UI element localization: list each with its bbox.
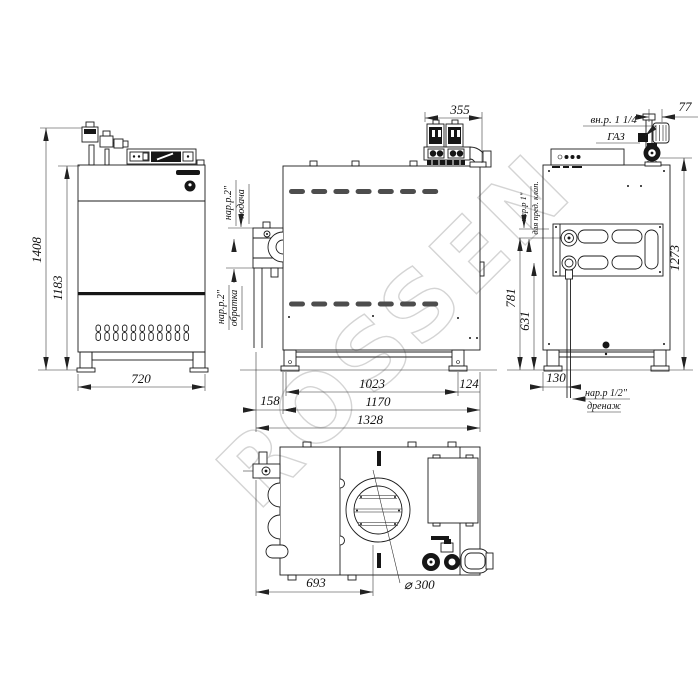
dim-front-total-height: 1408 [29,237,44,264]
dim-side-flange-offset: 158 [260,393,280,408]
technical-drawing-page: ROSSEN 1408 1183 [0,0,700,700]
front-legs [77,352,208,372]
dim-front-width: 720 [131,371,151,386]
dim-top-flue-diameter: ⌀ 300 [404,577,435,592]
control-knob [185,181,196,192]
drain-label: нар.р 1/2" дренаж [573,388,631,412]
roof-fitting [197,160,204,165]
dim-top-flue-center-offset: 693 [306,575,326,590]
svg-text:нар.р 1/2": нар.р 1/2" [585,388,628,399]
dim-rear-total-height: 1273 [667,245,682,272]
supply-return-flange [253,222,283,348]
dim-front-body-height: 1183 [50,275,65,301]
dim-rear-safety-height: 781 [503,288,518,308]
dim-side-body-depth: 1170 [365,394,391,409]
front-view: 1408 1183 720 [29,122,208,391]
svg-text:ГАЗ: ГАЗ [606,131,625,143]
supply-port-label: нар.р.2" подача [223,180,254,252]
dim-rear-gas-offset: 77 [679,99,693,114]
boiler-front-outline [78,165,205,352]
svg-text:для пред. клап.: для пред. клап. [530,181,540,234]
front-vent-slots [96,325,189,341]
dim-side-total-depth: 1328 [357,412,384,427]
top-gas-valve-assembly [422,539,493,573]
dim-side-leg-span: 1023 [359,376,386,391]
svg-text:нар.р.2": нар.р.2" [216,289,227,324]
boiler-drawing: ROSSEN 1408 1183 [0,0,700,700]
svg-text:нар.р 1": нар.р 1" [518,192,528,221]
svg-text:подача: подача [236,189,247,219]
safety-valve-port [561,230,577,246]
control-panel-rear [551,149,624,168]
svg-text:дренаж: дренаж [587,401,621,412]
dim-rear-drain-offset: 130 [546,370,566,385]
return-port-label: нар.р.2" обратка [216,268,254,330]
top-control-box [428,455,478,540]
burner-gas-valve-assembly [424,120,491,167]
safety-valve-group [82,122,128,165]
rear-legs [544,342,669,372]
brand-badge [176,170,200,175]
dim-side-burner-depth: 355 [449,102,470,117]
flue-opening [346,478,410,542]
dim-side-leg-back-offset: 124 [459,376,479,391]
svg-text:нар.р.2": нар.р.2" [223,185,234,220]
svg-text:вн.р. 1 1/4": вн.р. 1 1/4" [591,114,642,126]
svg-text:обратка: обратка [229,290,240,327]
dim-rear-drain-height: 631 [517,311,532,331]
control-panel-front [127,149,196,164]
